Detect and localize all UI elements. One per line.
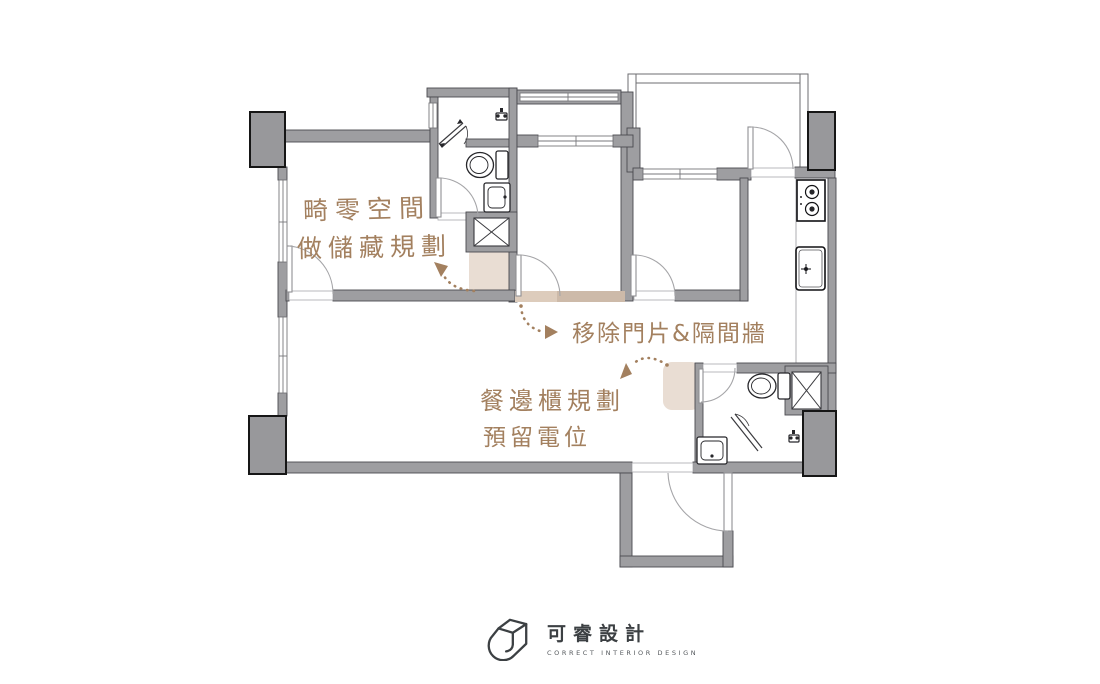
toilet-bottom-icon bbox=[748, 373, 790, 399]
pipe-shaft-bottom bbox=[785, 366, 828, 415]
floor-plan-page: 畸零空間 做儲藏規劃 移除門片&隔間牆 餐邊櫃規劃 預留電位 可睿設計 CORR… bbox=[0, 0, 1100, 684]
cube-logo-icon bbox=[487, 615, 531, 661]
shower-faucet-bottom-icon bbox=[789, 430, 799, 442]
brand-logo-text: 可睿設計 CORRECT INTERIOR DESIGN bbox=[547, 619, 698, 657]
annotation-sideboard-line1: 餐邊櫃規劃 bbox=[480, 381, 625, 416]
brand-tagline: CORRECT INTERIOR DESIGN bbox=[547, 649, 698, 657]
brand-logo: 可睿設計 CORRECT INTERIOR DESIGN bbox=[487, 615, 698, 661]
kitchen-sink-icon bbox=[796, 247, 825, 290]
shower-door-top-icon bbox=[439, 119, 468, 148]
removed-wall-highlight bbox=[515, 291, 625, 302]
brand-name: 可睿設計 bbox=[547, 619, 698, 646]
balcony bbox=[628, 74, 808, 170]
annotation-sideboard-line2: 預留電位 bbox=[483, 418, 591, 452]
shower-faucet-top-icon bbox=[496, 108, 507, 120]
annotation-storage-line1: 畸零空間 bbox=[303, 188, 432, 227]
sideboard-highlight-patch bbox=[663, 362, 700, 410]
annotation-remove-wall: 移除門片&隔間牆 bbox=[572, 314, 767, 348]
pipe-shaft-top bbox=[466, 212, 517, 252]
floor-plan-drawing bbox=[0, 0, 1100, 684]
sink-top-icon bbox=[484, 183, 510, 212]
sink-bottom-icon bbox=[697, 437, 727, 464]
annotation-storage-line2: 做儲藏規劃 bbox=[297, 227, 453, 266]
stove-icon bbox=[797, 180, 825, 221]
shower-door-bottom-icon bbox=[731, 414, 762, 451]
toilet-top-icon bbox=[467, 151, 509, 179]
